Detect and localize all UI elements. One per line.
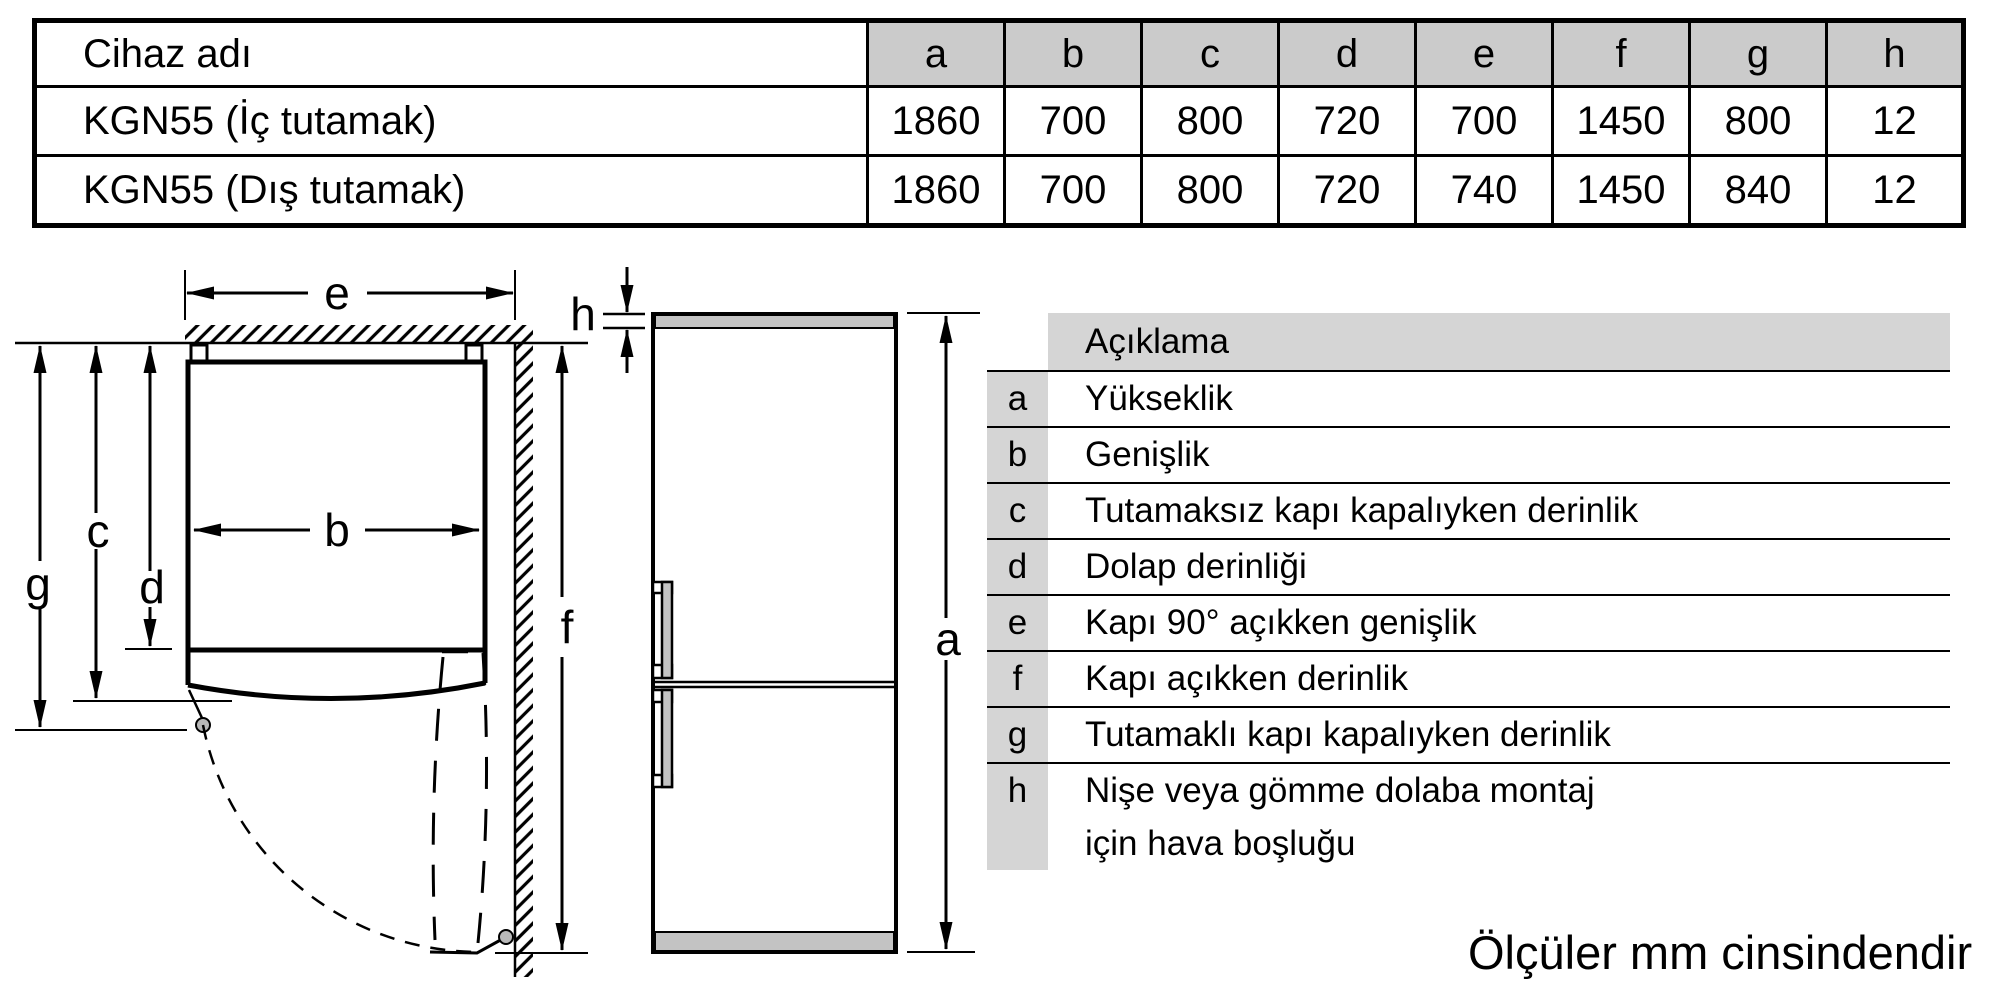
- legend-key: c: [987, 484, 1048, 538]
- value-cell: 12: [1827, 156, 1964, 226]
- legend-description: Kapı 90° açıkken genişlik: [1048, 596, 1950, 650]
- col-header-b: b: [1005, 21, 1142, 87]
- col-header-e: e: [1416, 21, 1553, 87]
- model-name: KGN55 (İç tutamak): [35, 87, 868, 156]
- spec-table-row-ic-tutamak: KGN55 (İç tutamak) 1860 700 800 720 700 …: [35, 87, 1964, 156]
- legend-row-a: a Yükseklik: [987, 370, 1950, 426]
- legend-description: Kapı açıkken derinlik: [1048, 652, 1950, 706]
- dim-label-f: f: [561, 601, 574, 653]
- spec-table-header-row: Cihaz adı a b c d e f g h: [35, 21, 1964, 87]
- dim-h: h: [570, 267, 645, 373]
- value-cell: 800: [1142, 87, 1279, 156]
- legend-description: Tutamaklı kapı kapalıyken derinlik: [1048, 708, 1950, 762]
- hinge-link-line: [189, 690, 202, 718]
- col-header-g: g: [1690, 21, 1827, 87]
- dim-label-b: b: [324, 504, 350, 556]
- col-header-f: f: [1553, 21, 1690, 87]
- value-cell: 840: [1690, 156, 1827, 226]
- wall-hatch-top: [185, 325, 533, 343]
- dim-label-c: c: [87, 505, 110, 557]
- dim-label-a: a: [935, 613, 961, 665]
- door-hinge-dot-open: [499, 930, 513, 944]
- value-cell: 1450: [1553, 87, 1690, 156]
- dim-e: e: [185, 267, 515, 320]
- value-cell: 700: [1416, 87, 1553, 156]
- col-header-a: a: [868, 21, 1005, 87]
- value-cell: 1860: [868, 156, 1005, 226]
- dim-label-g: g: [25, 558, 51, 610]
- front-view-drawing: a: [653, 313, 980, 952]
- legend-row-f: f Kapı açıkken derinlik: [987, 650, 1950, 706]
- legend-header: Açıklama: [1048, 313, 1950, 370]
- dim-label-e: e: [324, 267, 350, 319]
- spec-sheet-page: Cihaz adı a b c d e f g h KGN55 (İç tuta…: [0, 0, 2000, 1000]
- value-cell: 720: [1279, 156, 1416, 226]
- legend-table: Açıklama a Yükseklik b Genişlik c Tutama…: [987, 313, 1950, 870]
- legend-row-e: e Kapı 90° açıkken genişlik: [987, 594, 1950, 650]
- legend-key: b: [987, 428, 1048, 482]
- appliance-outline: [653, 314, 896, 952]
- dim-label-d: d: [139, 561, 165, 613]
- legend-key: d: [987, 540, 1048, 594]
- dim-a: a: [907, 313, 980, 952]
- value-cell: 800: [1142, 156, 1279, 226]
- value-cell: 700: [1005, 87, 1142, 156]
- hinge-block-right: [466, 345, 482, 361]
- legend-header-spacer: [987, 313, 1048, 370]
- units-note: Ölçüler mm cinsindendir: [1468, 925, 1972, 980]
- legend-description: Nişe veya gömme dolaba montaj için hava …: [1048, 764, 1950, 870]
- model-name: KGN55 (Dış tutamak): [35, 156, 868, 226]
- value-cell: 1860: [868, 87, 1005, 156]
- col-header-c: c: [1142, 21, 1279, 87]
- top-view-drawing: e b g c: [15, 267, 645, 977]
- spec-table-name-header: Cihaz adı: [35, 21, 868, 87]
- legend-key: e: [987, 596, 1048, 650]
- legend-key: g: [987, 708, 1048, 762]
- dim-d: d: [125, 346, 172, 649]
- legend-description: Yükseklik: [1048, 372, 1950, 426]
- value-cell: 740: [1416, 156, 1553, 226]
- legend-key: a: [987, 372, 1048, 426]
- col-header-d: d: [1279, 21, 1416, 87]
- spec-table-row-dis-tutamak: KGN55 (Dış tutamak) 1860 700 800 720 740…: [35, 156, 1964, 226]
- legend-row-g: g Tutamaklı kapı kapalıyken derinlik: [987, 706, 1950, 762]
- wall-hatch-right: [515, 343, 533, 977]
- legend-row-b: b Genişlik: [987, 426, 1950, 482]
- col-header-h: h: [1827, 21, 1964, 87]
- legend-description: Tutamaksız kapı kapalıyken derinlik: [1048, 484, 1950, 538]
- door-swing-arc: [203, 725, 480, 952]
- value-cell: 1450: [1553, 156, 1690, 226]
- appliance-bottom-strip: [655, 932, 894, 951]
- spec-table: Cihaz adı a b c d e f g h KGN55 (İç tuta…: [32, 18, 1966, 228]
- dim-f: f: [495, 346, 588, 953]
- legend-header-row: Açıklama: [987, 313, 1950, 370]
- value-cell: 720: [1279, 87, 1416, 156]
- open-door-outline-left: [433, 657, 443, 940]
- hinge-block-left: [191, 345, 207, 361]
- value-cell: 12: [1827, 87, 1964, 156]
- legend-row-h: h Nişe veya gömme dolaba montaj için hav…: [987, 762, 1950, 870]
- value-cell: 800: [1690, 87, 1827, 156]
- legend-key: f: [987, 652, 1048, 706]
- open-door-outline-right: [478, 653, 487, 943]
- appliance-top-strip: [655, 315, 894, 328]
- legend-description: Dolap derinliği: [1048, 540, 1950, 594]
- dimension-diagram: e b g c: [0, 240, 1000, 1000]
- value-cell: 700: [1005, 156, 1142, 226]
- dim-label-h: h: [570, 288, 596, 340]
- legend-description: Genişlik: [1048, 428, 1950, 482]
- legend-key: h: [987, 764, 1048, 870]
- legend-row-d: d Dolap derinliği: [987, 538, 1950, 594]
- legend-row-c: c Tutamaksız kapı kapalıyken derinlik: [987, 482, 1950, 538]
